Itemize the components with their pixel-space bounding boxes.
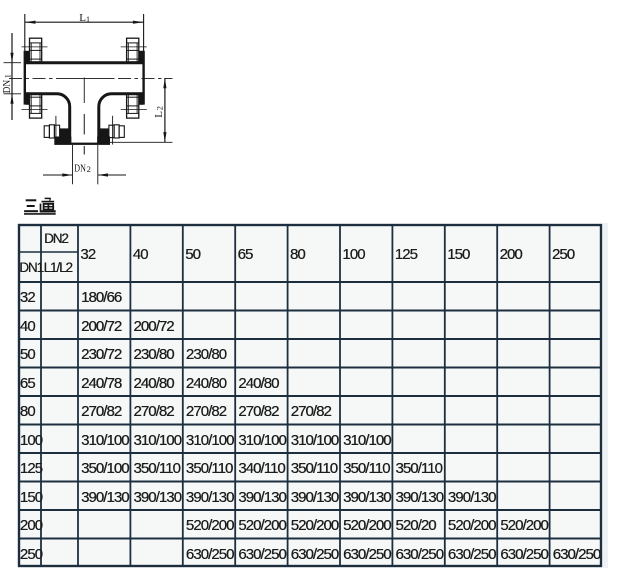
svg-text:1: 1 bbox=[86, 14, 90, 24]
svg-text:2: 2 bbox=[155, 106, 165, 110]
svg-text:2: 2 bbox=[87, 164, 91, 174]
svg-text:DN: DN bbox=[2, 79, 13, 93]
svg-text:1: 1 bbox=[3, 74, 12, 78]
svg-text:DN: DN bbox=[74, 162, 86, 174]
svg-text:L: L bbox=[153, 111, 165, 118]
